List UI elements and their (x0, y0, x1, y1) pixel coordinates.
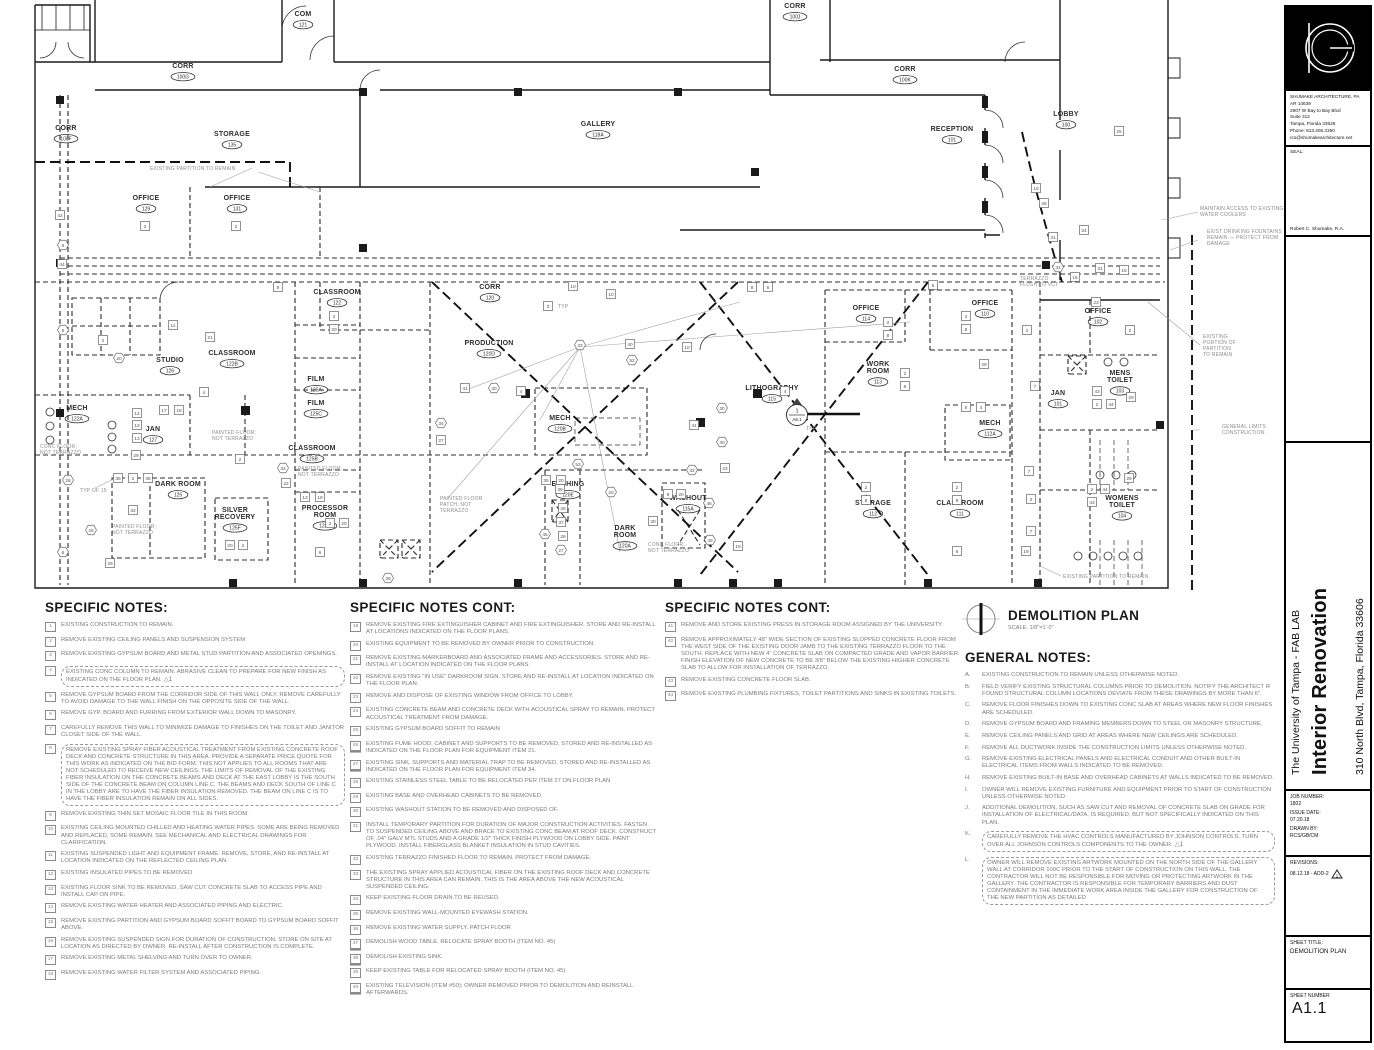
project-identification: The University of Tampa - FAB LAB Interi… (1286, 443, 1370, 791)
note-text: EXISTING SINK, SUPPORTS AND MATERIAL TRA… (366, 760, 656, 774)
note-tag-number: 14 (134, 411, 140, 417)
note-tag-number: 44 (1102, 487, 1108, 493)
note-item: 1EXISTING CONSTRUCTION TO REMAIN. (45, 622, 345, 632)
note-tag-number: 13 (134, 436, 140, 442)
note-item: 31INSTALL TEMPORARY PARTITION FOR DURATI… (350, 822, 656, 850)
room-name: STUDIO (156, 357, 184, 364)
note-tag-number: 45 (542, 532, 548, 538)
note-tag-number: 32 (1055, 265, 1061, 271)
note-text: THE EXISTING SPRAY APPLIED ACOUSTICAL FI… (366, 870, 656, 891)
revisions-box: REVISIONS: 08.12.18 - ADD-2 1 (1286, 857, 1370, 937)
note-number: 33 (350, 870, 361, 880)
note-tag-number: 20 (227, 543, 233, 549)
note-tag-number: 4 (520, 389, 523, 395)
note-tag-number: 8 (277, 285, 280, 291)
note-tag-number: 20 (608, 490, 614, 496)
note-item: 11EXISTING SUSPENDED LIGHT AND EQUIPMENT… (45, 851, 345, 865)
room-number: 125C (310, 412, 322, 418)
note-item: 9REMOVE EXISTING THIN SET MOSAIC FLOOR T… (45, 811, 345, 821)
room-name: RECOVERY (215, 514, 256, 521)
sheet-title-box: SHEET TITLE: DEMOLITION PLAN (1286, 937, 1370, 990)
room-number: 110 (981, 312, 989, 318)
note-item: J.ADDITIONAL DEMOLITION, SUCH AS SAW CUT… (965, 805, 1275, 826)
section-marker-number: 1 (795, 409, 798, 415)
note-item: D.REMOVE GYPSUM BOARD AND FRAMING MEMBER… (965, 721, 1275, 728)
room-number: 115A (682, 507, 694, 513)
note-number: K. (965, 831, 977, 852)
note-tag-number: 2 (1096, 402, 1099, 408)
note-number: 31 (350, 822, 361, 832)
note-tag-number: 18 (176, 408, 182, 414)
note-tag-number: 35 (543, 478, 549, 484)
note-item: 35REMOVE EXISTING WALL-MOUNTED EYEWASH S… (350, 910, 656, 920)
note-tag-number: 30 (719, 440, 725, 446)
note-text: REMOVE EXISTING "IN USE" DARKROOM SIGN. … (366, 674, 656, 688)
project-title: Interior Renovation (1309, 588, 1332, 775)
note-tag-number: 53 (575, 462, 581, 468)
note-text: REMOVE EXISTING THIN SET MOSAIC FLOOR TI… (61, 811, 345, 821)
note-item: A.EXISTING CONSTRUCTION TO REMAIN UNLESS… (965, 672, 1275, 679)
note-text: ADDITIONAL DEMOLITION, SUCH AS SAW CUT A… (982, 805, 1275, 826)
note-item: H.REMOVE EXISTING BUILT-IN BASE AND OVER… (965, 775, 1275, 782)
note-tag-number: 19 (735, 544, 741, 550)
note-tag-number: 6 (956, 549, 959, 555)
note-tag-number: 2 (144, 224, 147, 230)
note-tag-number: 2 (132, 476, 135, 482)
note-text: REMOVE EXISTING FIRE EXTINGUISHER CABINE… (366, 622, 656, 636)
room-name: MENS (1109, 370, 1130, 377)
note-tag-number: 29 (1126, 476, 1132, 482)
note-text: REMOVE EXISTING WALL-MOUNTED EYEWASH STA… (366, 910, 656, 920)
note-number: C. (965, 702, 977, 716)
note-item: 23REMOVE AND DISPOSE OF EXISTING WINDOW … (350, 693, 656, 703)
room-name: WORK (867, 361, 890, 368)
note-tag-number: 20 (341, 521, 347, 527)
note-tag-number: 19 (1023, 549, 1029, 555)
note-text: EXISTING CONCRETE BEAM AND CONCRETE DECK… (366, 707, 656, 721)
note-number: 11 (45, 851, 56, 861)
note-number: 34 (350, 895, 361, 905)
plan-annotation: NOT TERRAZZO (298, 472, 339, 478)
note-item: 15REMOVE EXISTING PARTITION AND GYPSUM B… (45, 918, 345, 932)
note-number: 43 (665, 677, 676, 687)
room-number: 100 (1062, 123, 1071, 129)
note-text: EXISTING CONC COLUMN TO REMAIN. ABRASIVE… (61, 666, 345, 687)
room-name: CORR (55, 125, 76, 132)
room-name: DARK ROOM (155, 481, 201, 488)
note-tag-number: 5 (767, 285, 770, 291)
note-item: 6REMOVE GYP. BOARD AND FURRING FROM EXTE… (45, 710, 345, 720)
room-name: ROOM (614, 532, 637, 539)
note-text: EXISTING BASE AND OVERHEAD CABINETS TO B… (366, 793, 656, 803)
note-text: REMOVE EXISTING BUILT-IN BASE AND OVERHE… (982, 775, 1275, 782)
general-notes-column: GENERAL NOTES: A.EXISTING CONSTRUCTION T… (965, 650, 1275, 910)
note-tag-number: 52 (629, 358, 635, 364)
room-name: ROOM (867, 368, 890, 375)
general-notes-list: A.EXISTING CONSTRUCTION TO REMAIN UNLESS… (965, 672, 1275, 905)
note-tag-number: 8 (887, 333, 890, 339)
note-tag-number: 6 (62, 328, 65, 334)
note-item: 4EXISTING CONC COLUMN TO REMAIN. ABRASIV… (45, 666, 345, 687)
note-tag-number: 10 (684, 345, 690, 351)
note-item: 10EXISTING CEILING MOUNTED CHILLED AND H… (45, 825, 345, 846)
room-number: 100K (899, 78, 911, 84)
revision-delta-icon: 1 (1331, 869, 1343, 879)
note-tag-number: 8 (956, 498, 959, 504)
note-tag-number: 19 (317, 495, 323, 501)
note-number: 24 (350, 707, 361, 717)
room-number: 127 (149, 438, 158, 444)
note-tag-number: 30 (719, 406, 725, 412)
note-tag-number: 2 (1129, 328, 1132, 334)
note-text: REMOVE EXISTING WATER FILTER SYSTEM AND … (61, 970, 345, 980)
room-name: COM (295, 11, 312, 18)
specific-notes-cont2-list: 41REMOVE AND STORE EXISTING PRESS IN STO… (665, 622, 965, 701)
note-text: REMOVE ALL DUCTWORK INSIDE THE CONSTRUCT… (982, 745, 1275, 752)
note-item: 12EXISTING INSULATED PIPES TO BE REMOVED (45, 870, 345, 880)
note-text: REMOVE GYPSUM BOARD AND FRAMING MEMBERS … (982, 721, 1275, 728)
sheet-title-label: SHEET TITLE: (1290, 940, 1366, 946)
room-name: MECH (979, 420, 1000, 427)
note-number: 22 (350, 674, 361, 684)
note-number: F. (965, 745, 977, 752)
note-item: 34KEEP EXISTING FLOOR DRAIN TO BE REUSED… (350, 895, 656, 905)
room-name: PRODUCTION (464, 340, 513, 347)
note-text: REMOVE EXISTING GYPSUM BOARD AND METAL S… (61, 651, 345, 661)
note-text: REMOVE EXISTING SUSPENDED SIGN FOR DURAT… (61, 937, 345, 951)
note-number: 16 (45, 937, 56, 947)
note-tag-number: 6 (62, 550, 65, 556)
note-text: EXISTING STAINLESS STEEL TABLE TO BE REL… (366, 778, 656, 788)
section-marker: 1 A6.1 (786, 398, 860, 426)
firm-logo (1286, 7, 1370, 91)
note-text: REMOVE EXISTING CONCRETE FLOOR SLAB. (681, 677, 965, 687)
note-item: 29EXISTING BASE AND OVERHEAD CABINETS TO… (350, 793, 656, 803)
note-number: A. (965, 672, 977, 679)
note-text: DEMOLISH EXISTING SINK. (366, 954, 656, 964)
room-number: 113 (874, 380, 882, 386)
note-tag-number: 44 (1108, 402, 1114, 408)
note-item: G.REMOVE EXISTING ELECTRICAL PANELS AND … (965, 756, 1275, 770)
note-tag-number: 42 (57, 213, 63, 219)
note-text: OWNER WILL REMOVE EXISTING ARTWORK MOUNT… (982, 857, 1275, 905)
room-name: OFFICE (224, 195, 251, 202)
note-tag-number: 46 (706, 501, 712, 507)
room-name: PROCESSOR (302, 505, 349, 512)
note-tag-number: 43 (1089, 500, 1095, 506)
note-number: 29 (350, 793, 361, 803)
note-tag-number: 22 (722, 466, 728, 472)
room-name: CORR (784, 3, 805, 10)
note-tag-number: 29 (107, 561, 113, 567)
note-tag-number: 27 (438, 438, 444, 444)
note-number: 20 (350, 641, 361, 651)
note-tag-number: 28 (65, 478, 71, 484)
note-item: 37DEMOLISH WOOD TABLE. RELOCATE SPRAY BO… (350, 939, 656, 949)
revision-entry: 08.12.18 - ADD-2 (1290, 871, 1329, 877)
note-number: 12 (45, 870, 56, 880)
note-tag-number: 34 (130, 508, 136, 514)
note-text: REMOVE AND DISPOSE OF EXISTING WINDOW FR… (366, 693, 656, 703)
room-name: SILVER (222, 507, 248, 514)
plan-title-block: DEMOLITION PLAN SCALE: 1/8"=1'-0" (962, 600, 1139, 638)
note-text: EXISTING CONSTRUCTION TO REMAIN. (61, 622, 345, 632)
note-tag-number: 6 (319, 550, 322, 556)
note-tag-number: 20 (116, 356, 122, 362)
room-name: WASHOUT (669, 495, 707, 502)
note-tag-number: 40 (627, 342, 633, 348)
note-item: 38DEMOLISH EXISTING SINK. (350, 954, 656, 964)
note-number: E. (965, 733, 977, 740)
note-tag-number: 2 (329, 521, 332, 527)
note-text: EXISTING GYPSUM BOARD SOFFIT TO REMAIN (366, 726, 656, 736)
room-number: 100G (177, 75, 189, 81)
note-item: K.CAREFULLY REMOVE THE HVAC CONTROLS MAN… (965, 831, 1275, 852)
note-tag-number: 34 (438, 421, 444, 427)
note-text: EXISTING SUSPENDED LIGHT AND EQUIPMENT F… (61, 851, 345, 865)
note-tag-number: 39 (557, 487, 563, 493)
note-tag-number: 29 (981, 362, 987, 368)
note-tag-number: 2 (239, 457, 242, 463)
room-number: 104 (1118, 514, 1127, 520)
note-number: 40 (350, 983, 361, 993)
note-tag-number: 44 (59, 262, 65, 268)
note-tag-number: 29 (133, 453, 139, 459)
note-text: FIELD VERIFY EXISTING STRUCTURAL COLUMNS… (982, 684, 1275, 698)
plan-annotation: FLUSH TO VCT (1020, 282, 1058, 288)
note-item: F.REMOVE ALL DUCTWORK INSIDE THE CONSTRU… (965, 745, 1275, 752)
room-number: 100J (790, 15, 801, 21)
job-info: JOB NUMBER: 1802 ISSUE DATE: 07.20.18 DR… (1286, 791, 1370, 857)
note-number: 32 (350, 855, 361, 865)
note-tag-number: 10 (608, 292, 614, 298)
room-number: 125A (310, 388, 322, 394)
note-number: 38 (350, 954, 361, 964)
note-tag-number: 30 (650, 519, 656, 525)
note-tag-number: 31 (1097, 266, 1103, 272)
note-tag-number: 3 (547, 304, 550, 310)
room-name: OFFICE (972, 300, 999, 307)
note-tag-number: 22 (283, 481, 289, 487)
titleblock-spacer (1286, 237, 1370, 443)
room-number: 122A (71, 417, 83, 423)
room-name: CLASSROOM (208, 350, 255, 357)
project-address: 310 North Blvd, Tampa, Florida 33606 (1354, 598, 1366, 775)
note-tag-number: 41 (691, 423, 697, 429)
architect-name: Robert C. Shumake, R.A. (1290, 227, 1344, 232)
note-item: 25EXISTING GYPSUM BOARD SOFFIT TO REMAIN (350, 726, 656, 736)
note-item: 20EXISTING EQUIPMENT TO BE REMOVED BY OW… (350, 641, 656, 651)
note-number: 17 (45, 955, 56, 965)
note-tag-number: 6 (62, 243, 65, 249)
note-item: 2REMOVE EXISTING CEILING PANELS AND SUSP… (45, 637, 345, 647)
room-name: DARK (614, 525, 635, 532)
drawn-by: RCS/GB/CM (1290, 833, 1366, 840)
note-item: 16REMOVE EXISTING SUSPENDED SIGN FOR DUR… (45, 937, 345, 951)
room-number: 114 (862, 317, 870, 323)
note-number: 1 (45, 622, 56, 632)
door-arcs (40, 6, 1025, 350)
note-text: REMOVE FLOOR FINISHES DOWN TO EXISTING C… (982, 702, 1275, 716)
note-tag-number: 36 (145, 476, 151, 482)
room-number: 120D (483, 352, 495, 358)
room-number: 131 (233, 207, 242, 213)
note-tag-number: 2 (333, 314, 336, 320)
room-number: 115 (768, 397, 776, 403)
sheet-number-label: SHEET NUMBER (1290, 993, 1366, 999)
note-tag-number: 24 (1081, 228, 1087, 234)
note-item: E.REMOVE CEILING PANELS AND GRID AT AREA… (965, 733, 1275, 740)
note-text: INSTALL TEMPORARY PARTITION FOR DURATION… (366, 822, 656, 850)
note-tag-number: 15 (1072, 275, 1078, 281)
room-name: GALLERY (581, 121, 616, 128)
note-number: 3 (45, 651, 56, 661)
note-tag-number: 31 (1050, 235, 1056, 241)
note-text: KEEP EXISTING TABLE FOR RELOCATED SPRAY … (366, 968, 656, 978)
note-number: 14 (45, 903, 56, 913)
room-number: 125F (229, 526, 240, 532)
note-text: EXISTING TERRAZZO FINISHED FLOOR TO REMA… (366, 855, 656, 865)
note-tag-number: 32 (280, 466, 286, 472)
room-number: 102 (1094, 320, 1103, 326)
note-tag-number: 37 (558, 520, 564, 526)
specific-notes-cont2-title: SPECIFIC NOTES CONT: (665, 600, 965, 615)
note-number: 7 (45, 725, 56, 735)
note-number: B. (965, 684, 977, 698)
room-name: TOILET (1109, 502, 1135, 509)
note-tag-number: 41 (462, 386, 468, 392)
note-number: 19 (350, 622, 361, 632)
revision-delta-icon: △1 (164, 676, 173, 684)
note-number: 9 (45, 811, 56, 821)
note-number: J. (965, 805, 977, 826)
plan-annotation: NOT TERRAZZO (212, 436, 253, 442)
note-text: CAREFULLY REMOVE THE HVAC CONTROLS MANUF… (982, 831, 1275, 852)
room-name: JAN (1051, 390, 1066, 397)
note-tag-number: 26 (560, 534, 566, 540)
note-tag-number: 2 (1026, 328, 1029, 334)
room-name: CLASSROOM (288, 445, 335, 452)
note-number: L. (965, 857, 977, 905)
note-number: 41 (665, 622, 676, 632)
note-tag-number: 16 (1033, 186, 1039, 192)
note-item: 39KEEP EXISTING TABLE FOR RELOCATED SPRA… (350, 968, 656, 978)
note-tag-number: 11 (171, 323, 176, 329)
note-item: 5REMOVE GYPSUM BOARD FROM THE CORRIDOR S… (45, 692, 345, 706)
room-name: RECEPTION (931, 126, 974, 133)
room-number: 122 (333, 301, 342, 307)
floor-plan: 1 A6.1 COM121CORR100GCORR100FSTORAGE135G… (0, 0, 1284, 598)
room-name: CORR (479, 284, 500, 291)
note-tag-number: 23 (1093, 300, 1099, 306)
note-tag-number: 2 (865, 485, 868, 491)
note-tag-number: 27 (558, 548, 564, 554)
note-tag-number: 12 (134, 423, 140, 429)
note-text: OWNER WILL REMOVE EXISTING FURNITURE AND… (982, 787, 1275, 801)
note-tag-number: 32 (689, 468, 695, 474)
general-notes-title: GENERAL NOTES: (965, 650, 1275, 665)
room-name: LOBBY (1053, 111, 1079, 118)
note-tag-number: 33 (577, 343, 583, 349)
note-tag-number: 43 (1094, 389, 1100, 395)
room-name: FILM (307, 400, 324, 407)
sheet-number-box: SHEET NUMBER A1.1 (1286, 990, 1370, 1039)
note-tag-number: 7 (1034, 384, 1037, 390)
note-text: REMOVE APPROXIMATELY 48" WIDE SECTION OF… (681, 637, 965, 672)
plan-annotation: EXISTING PARTITION TO REMAIN (150, 166, 236, 172)
note-tag-number: 20 (678, 492, 684, 498)
note-tag-number: 29 (1128, 395, 1134, 401)
note-tag-number: 13 (302, 495, 308, 501)
plan-annotation: NOT TERRAZZO (648, 548, 689, 554)
note-tag-number: 8 (965, 327, 968, 333)
note-text: EXISTING CONSTRUCTION TO REMAIN UNLESS O… (982, 672, 1275, 679)
note-tag-number: 26 (88, 528, 94, 534)
specific-notes-column: SPECIFIC NOTES: 1EXISTING CONSTRUCTION T… (45, 600, 345, 985)
room-number: 120B (554, 427, 566, 433)
note-tag-number: 9 (667, 492, 670, 498)
note-text: REMOVE EXISTING MARKERBOARD AND ASSOCIAT… (366, 655, 656, 669)
note-number: 27 (350, 760, 361, 770)
note-number: 44 (665, 691, 676, 701)
note-tag-number: 4 (980, 405, 983, 411)
note-tag-number: 21 (207, 335, 213, 341)
note-text: REMOVE EXISTING ELECTRICAL PANELS AND EL… (982, 756, 1275, 770)
revisions-label: REVISIONS: (1290, 860, 1366, 866)
room-number: 125B (306, 457, 318, 463)
seal-label: SEAL: (1290, 150, 1304, 155)
specific-notes-cont1-list: 19REMOVE EXISTING FIRE EXTINGUISHER CABI… (350, 622, 656, 997)
note-item: 42REMOVE APPROXIMATELY 48" WIDE SECTION … (665, 637, 965, 672)
room-number: 101 (948, 138, 957, 144)
note-text: EXISTING CEILING MOUNTED CHILLED AND HEA… (61, 825, 345, 846)
note-text: EXISTING EQUIPMENT TO BE REMOVED BY OWNE… (366, 641, 656, 651)
note-text: REMOVE AND STORE EXISTING PRESS IN STORA… (681, 622, 965, 632)
note-item: 19REMOVE EXISTING FIRE EXTINGUISHER CABI… (350, 622, 656, 636)
note-text: REMOVE EXISTING PARTITION AND GYPSUM BOA… (61, 918, 345, 932)
plan-annotation: NOT TERRAZZO (40, 450, 81, 456)
note-item: 17REMOVE EXISTING METAL SHELVING AND TUR… (45, 955, 345, 965)
note-number: 35 (350, 910, 361, 920)
room-number: 121 (299, 23, 308, 29)
room-name: CORR (894, 66, 915, 73)
note-item: 3REMOVE EXISTING GYPSUM BOARD AND METAL … (45, 651, 345, 661)
note-number: H. (965, 775, 977, 782)
note-number: 37 (350, 939, 361, 949)
note-text: REMOVE EXISTING WATER HEATER AND ASSOCIA… (61, 903, 345, 913)
note-item: 22REMOVE EXISTING "IN USE" DARKROOM SIGN… (350, 674, 656, 688)
note-tag-number: 20 (331, 327, 337, 333)
note-tag-number: 17 (161, 408, 167, 414)
note-tag-number: 8 (965, 405, 968, 411)
room-number: 135 (228, 143, 237, 149)
title-block: SHUMAKE ARCHITECTURE, PA AR 14639 2907 W… (1284, 5, 1372, 1043)
note-text: DEMOLISH WOOD TABLE. RELOCATE SPRAY BOOT… (366, 939, 656, 949)
seal-box: SEAL: Robert C. Shumake, R.A. (1286, 147, 1370, 237)
note-number: 13 (45, 885, 56, 895)
note-tag-number: 5 (932, 283, 935, 289)
room-number: 129 (142, 207, 151, 213)
plan-annotation: TERRAZZO (440, 508, 469, 514)
note-tag-number: 4 (784, 389, 787, 395)
note-number: I. (965, 787, 977, 801)
note-number: 21 (350, 655, 361, 665)
specific-notes-cont1-title: SPECIFIC NOTES CONT: (350, 600, 656, 615)
note-tag-number: 8 (904, 384, 907, 390)
room-number: 100F (60, 137, 71, 143)
note-item: 8REMOVE EXISTING SPRAY FIBER ACOUSTICAL … (45, 744, 345, 807)
note-tag-number: 4 (203, 390, 206, 396)
